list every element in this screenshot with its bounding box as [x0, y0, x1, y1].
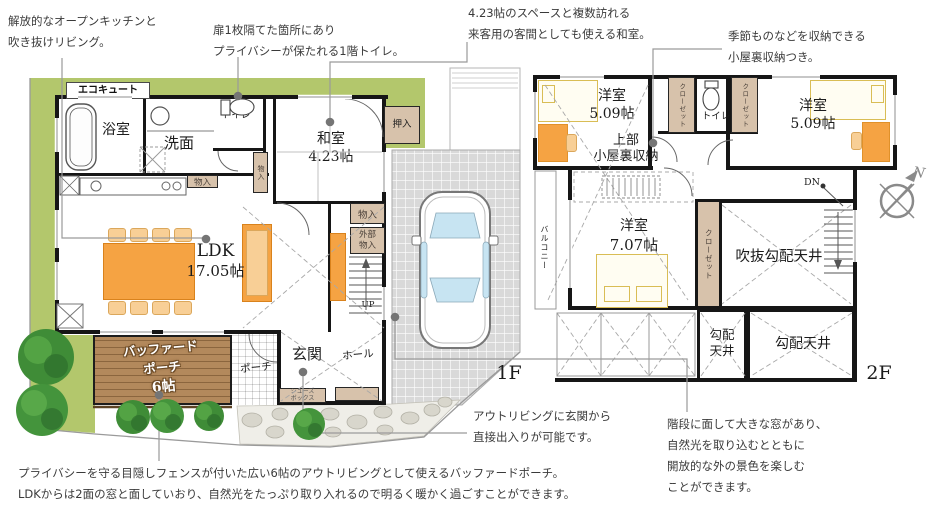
- callout-line: 来客用の客間としても使える和室。: [468, 24, 651, 45]
- washitsu-size: 4.23帖: [300, 149, 362, 167]
- callout-buffered-porch: プライバシーを守る目隠しフェンスが付いた広い6帖のアウトリビングとして使えるバッ…: [18, 463, 575, 505]
- storage-box: 物入: [350, 203, 385, 224]
- washroom-label: 洗面: [147, 134, 211, 153]
- closet: クローゼット: [731, 77, 758, 133]
- exterior-storage-box: 外部 物入: [350, 227, 385, 254]
- exterior-storage-line1: 外部: [359, 230, 376, 240]
- chair: [130, 228, 148, 242]
- carport: [450, 68, 520, 150]
- ldk-size: 17.05帖: [168, 262, 263, 281]
- pillow: [871, 85, 884, 103]
- washitsu-name: 和室: [300, 131, 362, 149]
- attic-ladder: [602, 176, 660, 198]
- storage-label: 物入: [358, 207, 377, 221]
- callout-open-kitchen: 解放的なオープンキッチンと 吹き抜けリビング。: [8, 11, 157, 53]
- callout-line: 開放的な外の景色を楽しむ: [667, 456, 827, 477]
- wall: [533, 166, 653, 170]
- callout-line: 直接出入りが可能です。: [473, 427, 611, 448]
- callout-washitsu: 4.23帖のスペースと複数訪れる 来客用の客間としても使える和室。: [468, 3, 651, 45]
- callout-attic: 季節ものなどを収納できる 小屋裏収納つき。: [728, 26, 866, 68]
- bedroom1-label: 洋室 5.09帖: [577, 88, 647, 123]
- wall: [55, 330, 281, 334]
- car: [412, 192, 498, 348]
- callout-stair-window: 階段に面して大きな窓があり、 自然光を取り込むとともに 開放的な外の景色を楽しむ…: [667, 414, 827, 498]
- bedroom2-label: 洋室 5.09帖: [778, 98, 848, 133]
- closet-label: クローゼット: [678, 83, 685, 128]
- up-label: UP: [356, 300, 380, 311]
- wall: [213, 148, 266, 151]
- bathroom-label: 浴室: [86, 122, 146, 140]
- wall: [55, 95, 59, 334]
- tree: [116, 400, 150, 434]
- callout-line: アウトリビングに玄関から: [473, 406, 611, 427]
- closet-label: クローゼット: [741, 83, 748, 128]
- chair: [130, 301, 148, 315]
- storage-box: 物入: [187, 175, 218, 188]
- ldk-name: LDK: [168, 241, 263, 262]
- storage-box: 物入: [253, 152, 268, 193]
- tree: [18, 329, 74, 385]
- desk-chair: [851, 132, 862, 150]
- bedroom2-size: 5.09帖: [778, 116, 848, 134]
- chair: [152, 301, 170, 315]
- wall: [726, 166, 897, 170]
- bedroom3-name: 洋室: [599, 218, 669, 236]
- callout-toilet: 扉1枚隔てた箇所にあり プライバシーが保たれる1階トイレ。: [213, 20, 404, 62]
- sloped-small-line1: 勾配: [699, 327, 745, 343]
- attic-line1: 上部: [576, 133, 676, 149]
- callout-line: 吹き抜けリビング。: [8, 32, 157, 53]
- sloped-ceiling-large-label: 勾配天井: [756, 336, 850, 354]
- attic-line2: 小屋裏収納: [576, 149, 676, 165]
- closet: クローゼット: [668, 77, 695, 133]
- shoe-box-line2: ボックス: [291, 396, 315, 403]
- chair: [174, 301, 192, 315]
- callout-line: LDKからは2面の窓と面していおり、自然光をたっぷり取り入れるので明るく暖かく過…: [18, 484, 575, 505]
- wall: [273, 95, 276, 204]
- genkan-label: 玄関: [284, 345, 330, 364]
- oshiire-label: 押入: [392, 119, 411, 131]
- floor1-tag: 1F: [492, 362, 526, 386]
- bedroom3-size: 7.07帖: [599, 236, 669, 255]
- desk: [538, 124, 568, 162]
- hall-storage: [335, 387, 379, 401]
- ldk-label: LDK 17.05帖: [168, 241, 263, 281]
- sloped-ceiling-small-label: 勾配 天井: [699, 327, 745, 358]
- floor-plan-sheet: 押入 物入 物入 物入 外部 物入 シューズ ボックス クローゼット クローゼッ…: [0, 0, 932, 510]
- toilet-fixture-2f: [703, 81, 719, 110]
- callout-line: 解放的なオープンキッチンと: [8, 11, 157, 32]
- storage-label: 物入: [194, 176, 211, 188]
- callout-line: ことができます。: [667, 477, 827, 498]
- callout-line: 小屋裏収納つき。: [728, 47, 866, 68]
- bedroom2-name: 洋室: [778, 98, 848, 116]
- wall: [533, 75, 897, 79]
- compass-north-label: N: [910, 164, 927, 182]
- bedroom1-size: 5.09帖: [577, 106, 647, 124]
- oshiire-closet: 押入: [384, 106, 420, 144]
- shoe-box: シューズ ボックス: [279, 388, 326, 403]
- washbasin: [147, 107, 214, 131]
- kitchen-counter: [60, 176, 186, 195]
- void-ceiling-label: 吹抜勾配天井: [725, 248, 833, 266]
- tree: [16, 384, 68, 436]
- wall: [568, 170, 572, 310]
- chair: [174, 228, 192, 242]
- sloped-small-line2: 天井: [699, 343, 745, 359]
- compass-icon: N: [880, 164, 927, 218]
- tree: [194, 401, 224, 431]
- chair: [152, 228, 170, 242]
- tv-board: [330, 233, 346, 301]
- dn-arrow: [834, 260, 842, 270]
- storage-label: 物入: [257, 165, 264, 181]
- callout-line: プライバシーが保たれる1階トイレ。: [213, 41, 404, 62]
- ecocute-label: エコキュート: [78, 85, 138, 96]
- dn-label: DN: [800, 177, 824, 189]
- callout-line: 階段に面して大きな窓があり、: [667, 414, 827, 435]
- pillow: [542, 85, 555, 103]
- bedroom3-label: 洋室 7.07帖: [599, 218, 669, 254]
- wall: [57, 173, 269, 176]
- wall: [893, 75, 897, 170]
- closet-label: クローゼット: [705, 229, 713, 280]
- closet: クローゼット: [698, 202, 719, 306]
- callout-outliving: アウトリビングに玄関から 直接出入りが可能です。: [473, 406, 611, 448]
- callout-line: 扉1枚隔てた箇所にあり: [213, 20, 404, 41]
- toilet2f-label: トイレ: [699, 111, 733, 123]
- pillow: [604, 286, 630, 302]
- wall: [533, 75, 537, 170]
- callout-line: プライバシーを守る目隠しフェンスが付いた広い6帖のアウトリビングとして使えるバッ…: [18, 463, 575, 484]
- desk: [862, 122, 890, 162]
- balcony-label: バルコニー: [536, 215, 548, 279]
- callout-line: 季節ものなどを収納できる: [728, 26, 866, 47]
- buffered-porch-label: バッファード ポーチ 6帖: [106, 333, 219, 400]
- toilet1f-label: トイレ: [216, 110, 256, 122]
- attic-label: 上部 小屋裏収納: [576, 133, 676, 166]
- storage-hatch-box: [57, 304, 83, 328]
- chair: [108, 301, 126, 315]
- floor2-tag: 2F: [862, 362, 896, 386]
- exterior-storage-line2: 物入: [359, 241, 376, 251]
- up-arrow: [362, 258, 370, 268]
- ecocute-label-box: エコキュート: [66, 82, 150, 99]
- callout-line: 自然光を取り込むとともに: [667, 435, 827, 456]
- tree: [293, 408, 325, 440]
- chair: [108, 228, 126, 242]
- pillow: [636, 286, 662, 302]
- callout-line: 4.23帖のスペースと複数訪れる: [468, 3, 651, 24]
- bedroom1-name: 洋室: [577, 88, 647, 106]
- hall-label: ホール: [337, 347, 380, 364]
- washitsu-label: 和室 4.23帖: [300, 131, 362, 166]
